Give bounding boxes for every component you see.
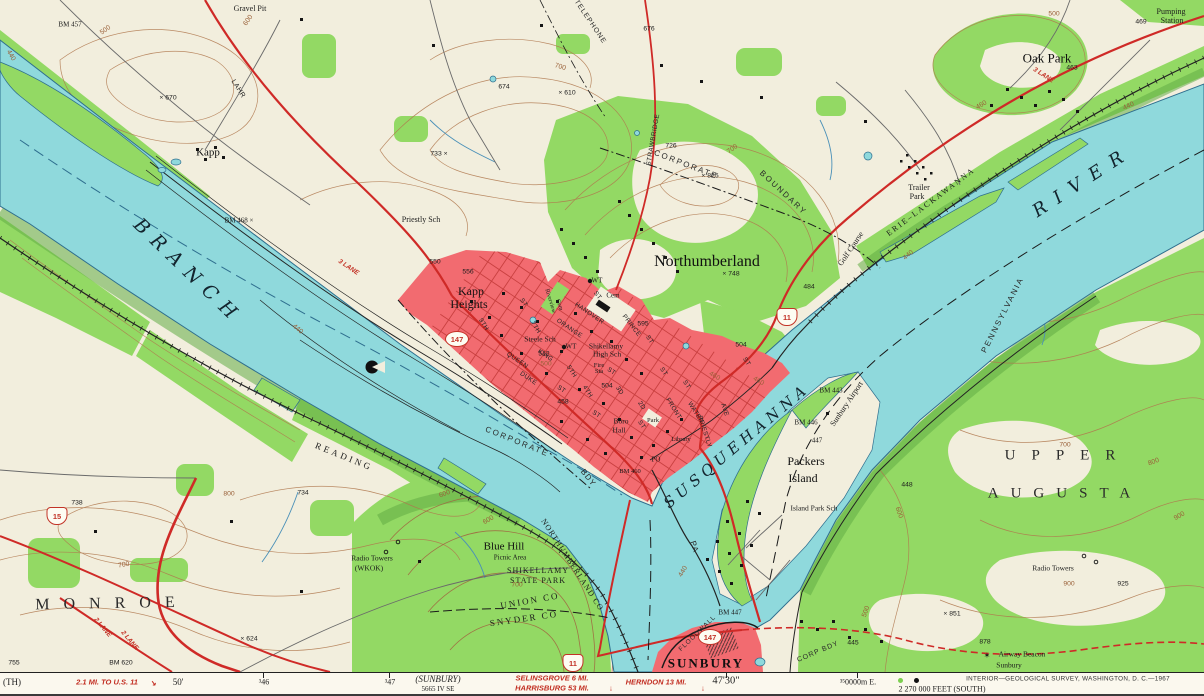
margin-arrow-2: ↓ <box>609 684 613 693</box>
roundhouse-symbol <box>366 361 386 374</box>
margin-arrow-1: ↘ <box>150 679 156 688</box>
margin-herndon: HERNDON 13 MI. <box>626 678 687 687</box>
margin-sunbury-quad: (SUNBURY) <box>415 674 460 684</box>
margin-selinsgrove: SELINSGROVE 6 MI. <box>516 674 589 683</box>
margin-2270000: 2 270 000 FEET (SOUTH) <box>899 685 986 694</box>
topo-map-screenshot: BRANCHSUSQUEHANNARIVERMONROEUPPERAUGUSTA… <box>0 0 1204 696</box>
margin-interior: INTERIOR—GEOLOGICAL SURVEY, WASHINGTON, … <box>966 676 1170 683</box>
margin-grid-346: ³46 <box>259 678 269 687</box>
margin-350000: ³⁵0000m E. <box>840 678 876 687</box>
margin-50ft: 50' <box>173 677 184 687</box>
margin-grid-347: ³47 <box>385 678 395 687</box>
margin-harrisburg: HARRISBURG 53 MI. <box>515 684 589 693</box>
margin-arrow-3: ↓ <box>701 684 705 693</box>
margin-north-ref: (TH) <box>3 677 21 687</box>
map-margin-strip: (TH)2.1 MI. TO U.S. 11↘50'³46³47(SUNBURY… <box>0 672 1204 695</box>
margin-4730: 47'30" <box>712 676 739 687</box>
margin-us11-note: 2.1 MI. TO U.S. 11 <box>76 678 138 687</box>
margin-quad-id: 5665 IV SE <box>422 685 455 693</box>
legend-woodland-dot <box>898 678 903 683</box>
legend-revision-dot <box>914 678 919 683</box>
map-artwork <box>0 0 1204 672</box>
